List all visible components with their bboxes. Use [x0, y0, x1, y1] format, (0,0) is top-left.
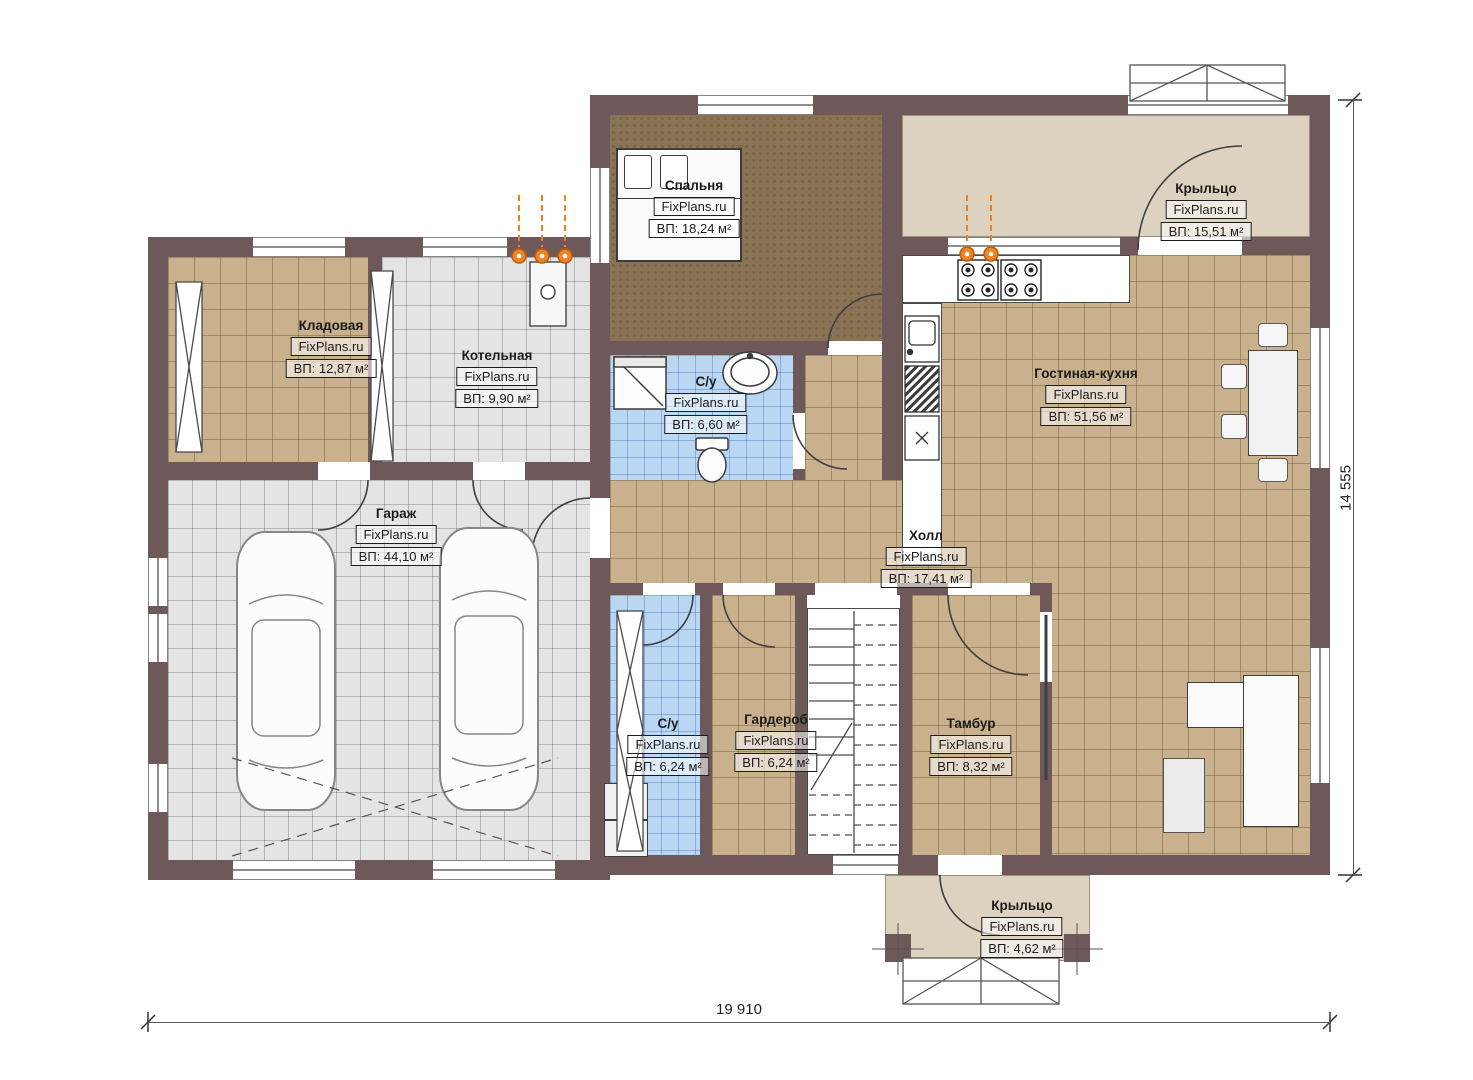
dimension-width: 19 910 — [148, 1022, 1330, 1023]
room-name: Гардероб — [744, 712, 808, 727]
wall — [900, 595, 912, 855]
room-label-boiler: Котельная FixPlans.ru ВП: 9,90 м² — [455, 348, 538, 408]
room-label-living-kitchen: Гостиная-кухня FixPlans.ru ВП: 51,56 м² — [1034, 366, 1137, 426]
area-box: ВП: 4,62 м² — [980, 939, 1063, 958]
room-label-wardrobe: Гардероб FixPlans.ru ВП: 6,24 м² — [734, 712, 817, 772]
room-name: Холл — [909, 528, 943, 543]
garage-door — [433, 860, 555, 880]
area-box: ВП: 51,56 м² — [1041, 407, 1132, 426]
area-box: ВП: 6,24 м² — [626, 757, 709, 776]
door-opening — [793, 413, 805, 469]
kitchen-counter-top — [902, 255, 1130, 303]
wall — [148, 237, 610, 257]
room-label-garage: Гараж FixPlans.ru ВП: 44,10 м² — [351, 506, 442, 566]
staircase — [807, 608, 900, 855]
brand-box: FixPlans.ru — [735, 731, 816, 750]
area-box: ВП: 12,87 м² — [286, 359, 377, 378]
wall — [882, 115, 902, 480]
area-box: ВП: 15,51 м² — [1161, 222, 1252, 241]
window — [148, 614, 168, 662]
room-label-bath-bottom: С/у FixPlans.ru ВП: 6,24 м² — [626, 716, 709, 776]
door-opening — [1040, 612, 1052, 682]
door-opening — [590, 498, 610, 558]
brand-box: FixPlans.ru — [885, 547, 966, 566]
window — [253, 237, 345, 257]
brand-box: FixPlans.ru — [355, 525, 436, 544]
dryer-label: СШ — [621, 794, 632, 810]
dining-chair — [1258, 458, 1288, 482]
coffee-table — [1163, 758, 1205, 833]
door-opening — [723, 583, 775, 595]
room-label-bedroom: Спальня FixPlans.ru ВП: 18,24 м² — [649, 178, 740, 238]
kitchen-counter-side — [902, 303, 942, 565]
window — [1310, 648, 1330, 783]
window — [423, 237, 507, 257]
area-box: ВП: 44,10 м² — [351, 547, 442, 566]
area-box: ВП: 18,24 м² — [649, 219, 740, 238]
brand-box: FixPlans.ru — [290, 337, 371, 356]
washer-label: Ст.М. — [621, 827, 632, 850]
floor-plan: СШ Ст.М. — [0, 0, 1473, 1080]
porch-pillar — [1064, 934, 1090, 962]
dryer-box: СШ — [604, 783, 648, 820]
area-box: ВП: 6,24 м² — [734, 753, 817, 772]
hall-floor — [610, 480, 902, 595]
window — [1310, 328, 1330, 468]
dining-table — [1248, 350, 1298, 456]
brand-box: FixPlans.ru — [653, 197, 734, 216]
room-label-vestibule: Тамбур FixPlans.ru ВП: 8,32 м² — [929, 716, 1012, 776]
door-opening — [318, 462, 370, 480]
room-name: Спальня — [665, 178, 723, 193]
dimension-width-value: 19 910 — [710, 1001, 768, 1018]
area-box: ВП: 8,32 м² — [929, 757, 1012, 776]
brand-box: FixPlans.ru — [1045, 385, 1126, 404]
room-name: Кладовая — [299, 318, 364, 333]
brand-box: FixPlans.ru — [456, 367, 537, 386]
corridor-floor — [805, 355, 882, 480]
wall — [168, 462, 590, 480]
brand-box: FixPlans.ru — [1165, 200, 1246, 219]
brand-box: FixPlans.ru — [665, 393, 746, 412]
window — [148, 764, 168, 812]
dining-chair — [1221, 364, 1247, 389]
room-label-storage: Кладовая FixPlans.ru ВП: 12,87 м² — [286, 318, 377, 378]
sofa-vertical — [1243, 675, 1299, 827]
door-opening — [938, 855, 1002, 875]
room-label-hall: Холл FixPlans.ru ВП: 17,41 м² — [881, 528, 972, 588]
room-label-bath-top: С/у FixPlans.ru ВП: 6,60 м² — [664, 374, 747, 434]
door-opening — [643, 583, 695, 595]
window — [148, 558, 168, 606]
room-name: Котельная — [462, 348, 533, 363]
area-box: ВП: 17,41 м² — [881, 569, 972, 588]
dining-chair — [1258, 323, 1288, 347]
window — [590, 168, 610, 263]
brand-box: FixPlans.ru — [627, 735, 708, 754]
washer-box: Ст.М. — [604, 820, 648, 857]
area-box: ВП: 6,60 м² — [664, 415, 747, 434]
room-name: Гостиная-кухня — [1034, 366, 1137, 381]
room-name: Тамбур — [947, 716, 996, 731]
room-label-porch-bottom: Крыльцо FixPlans.ru ВП: 4,62 м² — [980, 898, 1063, 958]
brand-box: FixPlans.ru — [981, 917, 1062, 936]
dimension-height: 14 555 — [1353, 100, 1354, 875]
room-name: Гараж — [376, 506, 416, 521]
door-opening — [473, 462, 525, 480]
room-name: С/у — [695, 374, 716, 389]
dimension-height-value: 14 555 — [1337, 465, 1354, 511]
room-name: Крыльцо — [1175, 181, 1236, 196]
window — [948, 237, 1120, 255]
room-label-porch-top: Крыльцо FixPlans.ru ВП: 15,51 м² — [1161, 181, 1252, 241]
room-name: С/у — [657, 716, 678, 731]
brand-box: FixPlans.ru — [930, 735, 1011, 754]
room-name: Крыльцо — [991, 898, 1052, 913]
porch-pillar — [885, 934, 911, 962]
dining-chair — [1221, 414, 1247, 439]
garage-door — [233, 860, 355, 880]
door-opening — [828, 341, 882, 355]
steps-bottom-icon — [903, 958, 1059, 1004]
window — [1128, 95, 1288, 115]
window — [833, 855, 898, 875]
window — [698, 95, 813, 115]
area-box: ВП: 9,90 м² — [455, 389, 538, 408]
